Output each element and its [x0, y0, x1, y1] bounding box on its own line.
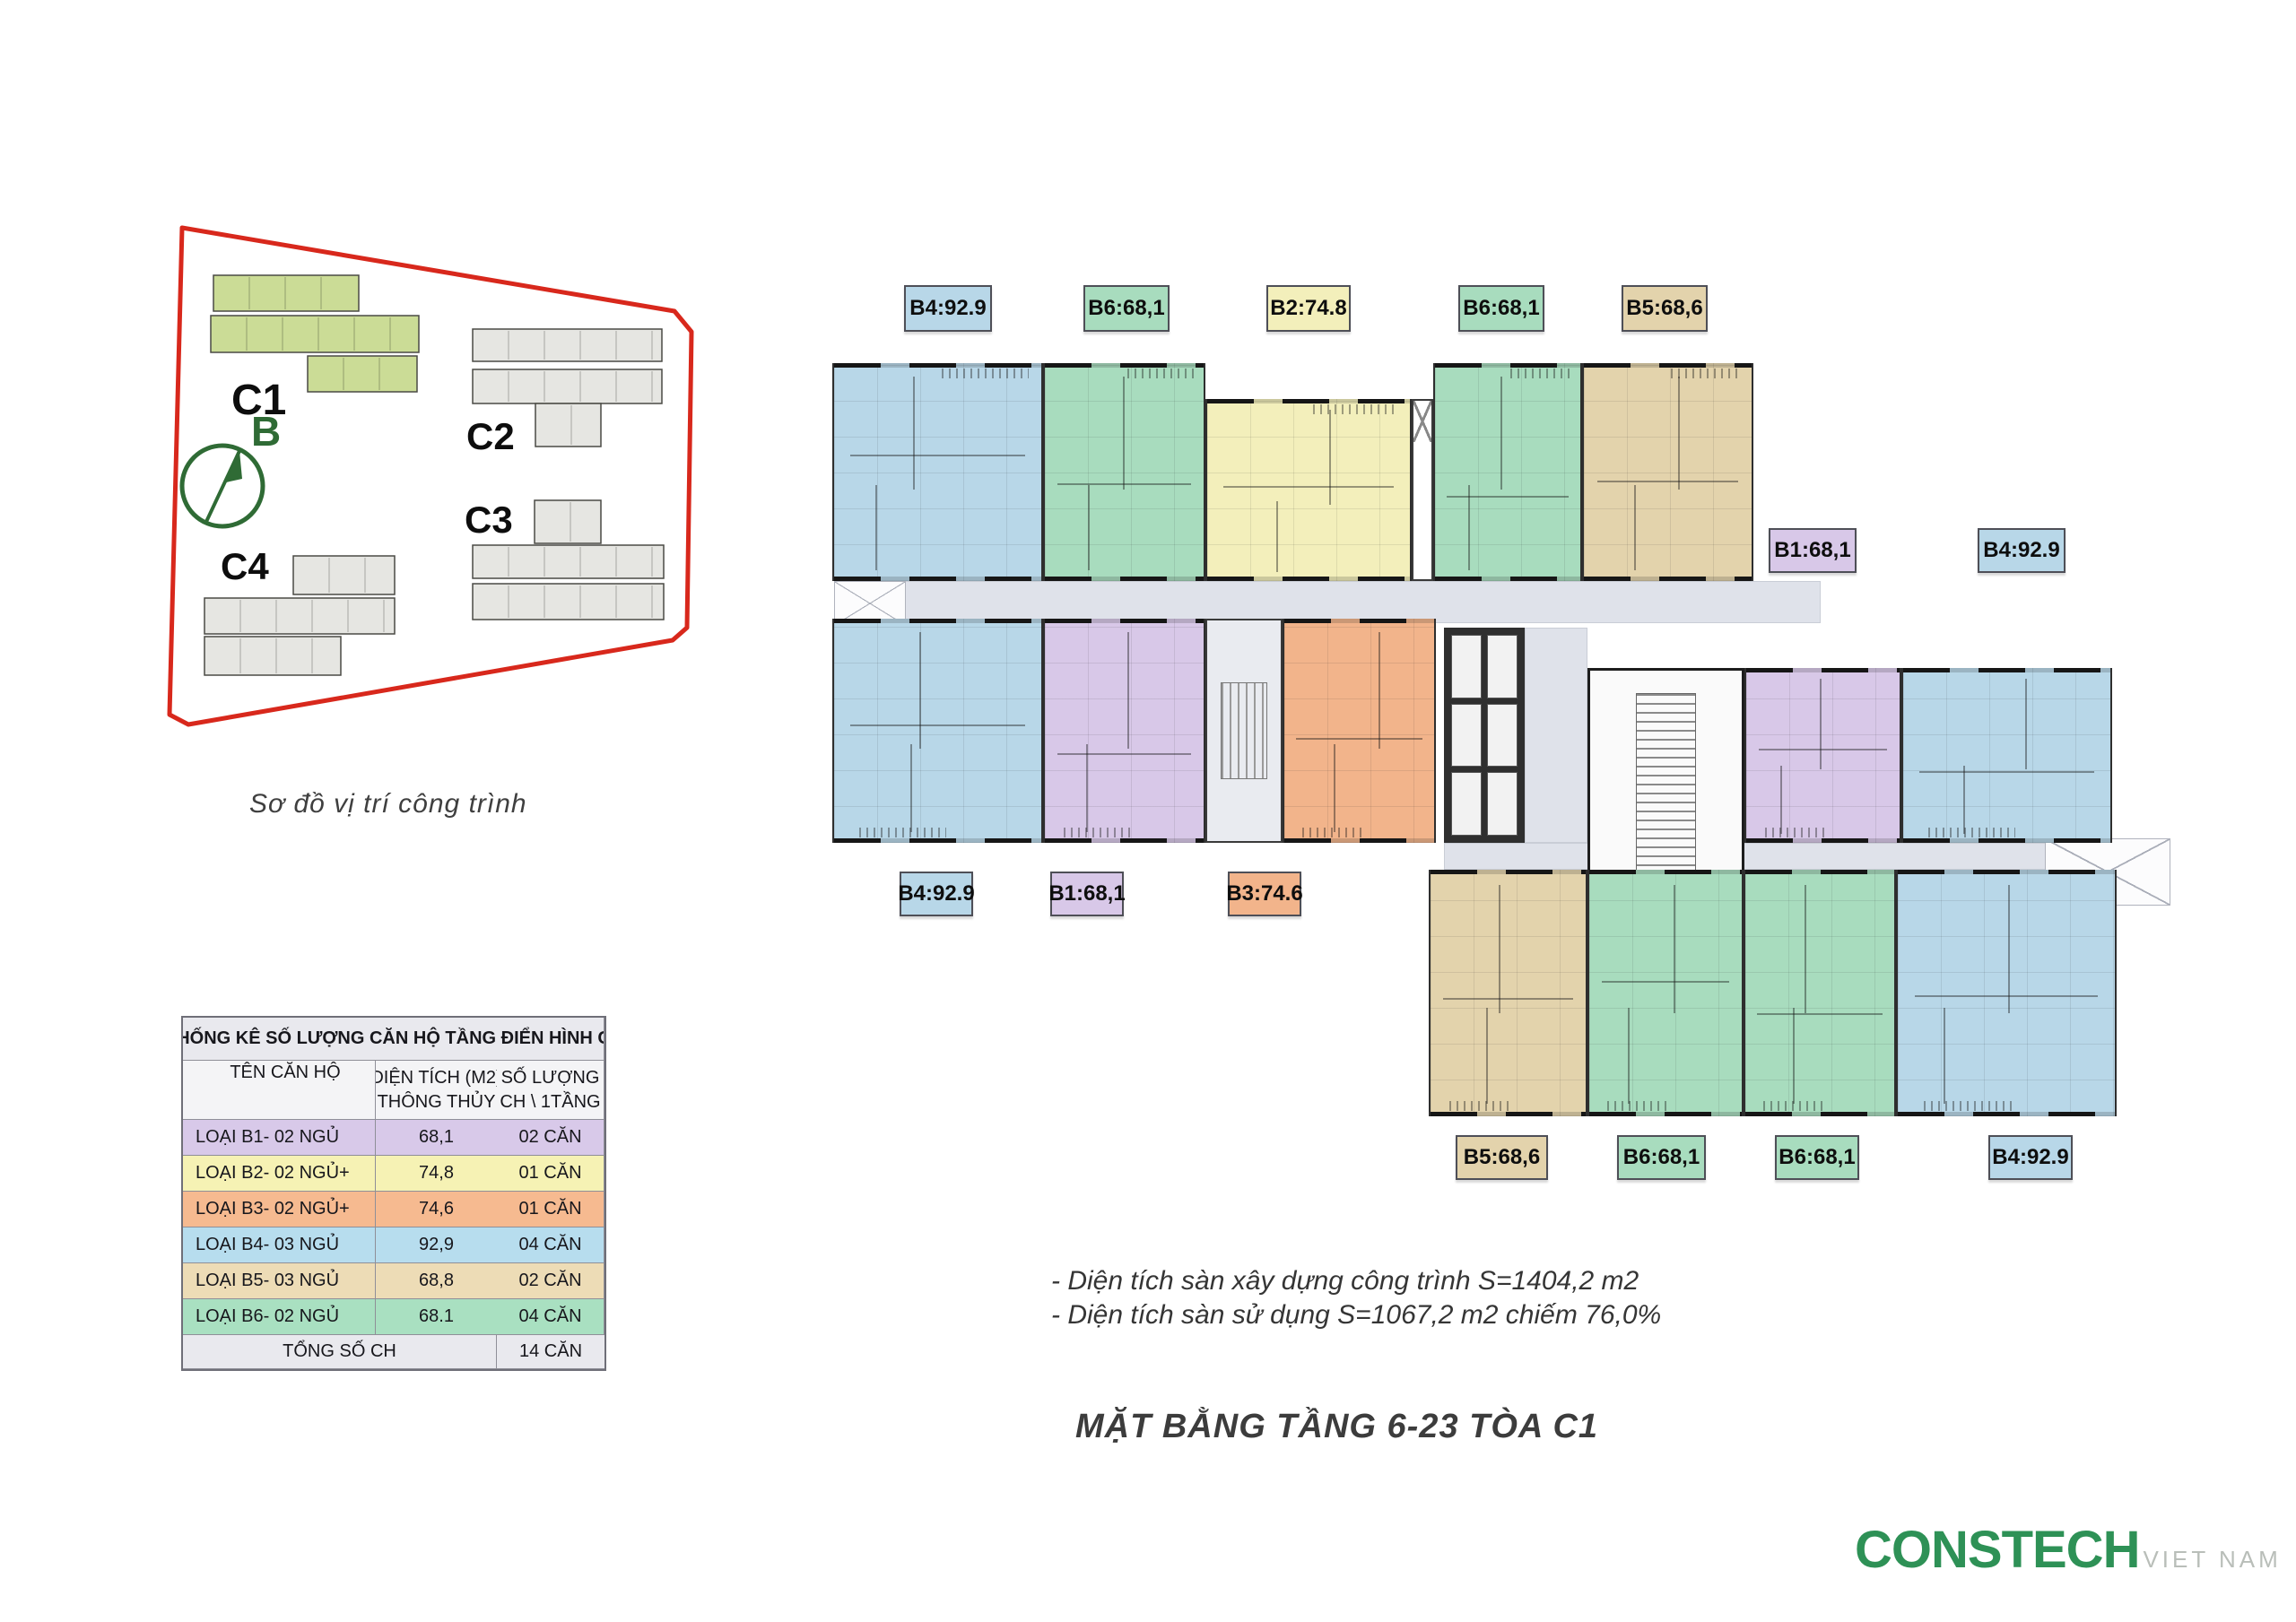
table-title: THỐNG KÊ SỐ LƯỢNG CĂN HỘ TẦNG ĐIỂN HÌNH …	[183, 1018, 604, 1061]
room-partition	[1634, 485, 1636, 570]
constech-logo: CONSTECH VIET NAM	[1855, 1524, 2282, 1576]
lobby-core	[1205, 619, 1283, 843]
table-cell-area: 68.1	[376, 1299, 497, 1335]
room-partition	[1919, 771, 2093, 773]
room-partition	[1057, 483, 1191, 485]
building-label-C4: C4	[221, 545, 269, 587]
room-partition	[1915, 995, 2097, 997]
unit-B4-block	[832, 619, 1043, 843]
logo-brand: CONSTECH	[1855, 1524, 2139, 1576]
room-partition	[1793, 1008, 1795, 1104]
room-partition	[1088, 485, 1090, 570]
balcony-hatch	[1064, 828, 1130, 837]
room-partition	[1468, 485, 1470, 570]
balcony-hatch	[1313, 404, 1398, 414]
room-partition	[1780, 766, 1782, 834]
room-partition	[1597, 481, 1738, 482]
room-partition	[913, 377, 915, 490]
room-partition	[2025, 679, 2027, 769]
shaft-core	[1412, 399, 1433, 581]
building-C2: C2	[466, 329, 662, 457]
room-partition	[1086, 744, 1088, 832]
unit-label-B4: B4:92.9	[1988, 1135, 2073, 1180]
site-map-caption: Sơ đồ vị trí công trình	[249, 789, 545, 820]
building-C4: C4	[204, 545, 395, 675]
unit-label-B6: B6:68,1	[1617, 1135, 1706, 1180]
compass-north-label: B	[251, 408, 281, 455]
unit-label-B2: B2:74.8	[1266, 285, 1351, 332]
room-partition	[1127, 632, 1129, 749]
column-header-area-line1: DIỆN TÍCH (M2)	[376, 1066, 497, 1090]
unit-B6-block	[1043, 363, 1205, 581]
balcony-hatch	[1302, 828, 1365, 837]
column-header-area: DIỆN TÍCH (M2) THÔNG THỦY	[376, 1061, 497, 1120]
room-partition	[875, 485, 877, 570]
table-cell-name: LOẠI B1- 02 NGỦ	[183, 1120, 376, 1156]
balcony-hatch	[1449, 1101, 1515, 1111]
balcony-hatch	[942, 369, 1029, 378]
elevator-cell	[1487, 704, 1518, 768]
room-partition	[1820, 679, 1822, 769]
unit-label-B6: B6:68,1	[1775, 1135, 1859, 1180]
room-partition	[1296, 738, 1422, 740]
balcony-hatch	[859, 828, 946, 837]
room-partition	[1123, 377, 1125, 490]
table-cell-qty: 04 CĂN	[497, 1299, 604, 1335]
table-cell-name: LOẠI B4- 03 NGỦ	[183, 1227, 376, 1263]
room-partition	[1447, 496, 1569, 498]
corridor-3	[1525, 628, 1587, 843]
balcony-hatch	[1510, 369, 1571, 378]
table-cell-name: LOẠI B6- 02 NGỦ	[183, 1299, 376, 1335]
unit-label-B4: B4:92.9	[1978, 528, 2066, 573]
plan-title: MẶT BẰNG TẦNG 6-23 TÒA C1	[1075, 1408, 1598, 1446]
room-partition	[1805, 885, 1806, 1013]
balcony-hatch	[1127, 369, 1194, 378]
room-partition	[1443, 998, 1573, 1000]
room-partition	[1378, 632, 1380, 749]
room-partition	[850, 724, 1024, 726]
room-partition	[1329, 410, 1331, 505]
table-cell-name: LOẠI B3- 02 NGỦ+	[183, 1192, 376, 1227]
room-partition	[1759, 749, 1888, 750]
balcony-hatch	[1924, 1101, 2015, 1111]
apartment-statistics-table: THỐNG KÊ SỐ LƯỢNG CĂN HỘ TẦNG ĐIỂN HÌNH …	[181, 1016, 606, 1371]
unit-label-B6: B6:68,1	[1083, 285, 1170, 332]
table-cell-area: 68,8	[376, 1263, 497, 1299]
unit-B4-block	[1896, 870, 2117, 1116]
room-partition	[1276, 501, 1278, 572]
table-cell-name: LOẠI B5- 03 NGỦ	[183, 1263, 376, 1299]
balcony-hatch	[1765, 828, 1830, 837]
unit-label-B3: B3:74.6	[1228, 872, 1301, 916]
column-header-name: TÊN CĂN HỘ	[183, 1061, 376, 1120]
unit-B4-block	[1901, 668, 2112, 843]
table-cell-area: 68,1	[376, 1120, 497, 1156]
room-partition	[1057, 753, 1191, 755]
table-cell-qty: 04 CĂN	[497, 1227, 604, 1263]
unit-B2-block	[1205, 399, 1412, 581]
room-partition	[1499, 885, 1500, 1013]
corridor-1	[839, 581, 1821, 623]
elevator-cell	[1451, 635, 1482, 698]
elevator-cell	[1487, 772, 1518, 836]
compass-icon: B	[182, 408, 281, 526]
stair-core	[1587, 668, 1744, 901]
site-buildings: C1C2C3C4	[204, 275, 664, 675]
room-partition	[1628, 1008, 1630, 1104]
column-header-qty-line2: CH \ 1TẦNG	[500, 1090, 600, 1115]
building-C3: C3	[465, 499, 664, 620]
building-C1: C1	[211, 275, 419, 424]
balcony-hatch	[1763, 1101, 1826, 1111]
building-label-C3: C3	[465, 499, 513, 541]
unit-label-B5: B5:68,6	[1622, 285, 1708, 332]
unit-B5-block	[1429, 870, 1587, 1116]
unit-B5-block	[1582, 363, 1753, 581]
table-cell-area: 74,6	[376, 1192, 497, 1227]
unit-label-B4: B4:92.9	[904, 285, 992, 332]
room-partition	[910, 744, 912, 832]
room-partition	[1757, 1013, 1882, 1015]
unit-label-B1: B1:68,1	[1050, 872, 1124, 916]
unit-B6-block	[1587, 870, 1744, 1116]
balcony-hatch	[1607, 1101, 1671, 1111]
table-cell-qty: 01 CĂN	[497, 1192, 604, 1227]
room-partition	[1500, 377, 1502, 490]
room-partition	[1674, 885, 1675, 1013]
page: C1C2C3C4 B Sơ đồ vị trí công trình B4:92…	[0, 0, 2296, 1622]
unit-B6-block	[1744, 870, 1896, 1116]
building-label-C2: C2	[466, 415, 515, 457]
logo-suffix: VIET NAM	[2143, 1548, 2281, 1571]
table-cell-qty: 02 CĂN	[497, 1120, 604, 1156]
column-header-qty: SỐ LƯỢNG CH \ 1TẦNG	[497, 1061, 604, 1120]
table-total-label: TỔNG SỐ CH	[183, 1335, 497, 1369]
unit-B4-block	[832, 363, 1043, 581]
unit-B3-block	[1283, 619, 1436, 843]
table-cell-area: 74,8	[376, 1156, 497, 1192]
elevator-cell	[1487, 635, 1518, 698]
room-partition	[1486, 1008, 1488, 1104]
elevator-core	[1444, 628, 1525, 843]
room-partition	[919, 632, 921, 749]
unit-label-B4: B4:92.9	[900, 872, 973, 916]
elevator-cell	[1451, 704, 1482, 768]
unit-label-B6: B6:68,1	[1458, 285, 1544, 332]
room-partition	[1944, 1008, 1945, 1104]
room-partition	[1602, 981, 1730, 983]
balcony-hatch	[1671, 369, 1742, 378]
unit-B1-block	[1043, 619, 1205, 843]
unit-B6-block	[1433, 363, 1582, 581]
table-cell-qty: 01 CĂN	[497, 1156, 604, 1192]
note-usable-area: - Diện tích sàn sử dụng S=1067,2 m2 chiế…	[1051, 1300, 1661, 1331]
unit-label-B1: B1:68,1	[1769, 528, 1857, 573]
unit-B1-block	[1744, 668, 1901, 843]
table-total-qty: 14 CĂN	[497, 1335, 604, 1369]
room-partition	[2008, 885, 2010, 1013]
table-cell-name: LOẠI B2- 02 NGỦ+	[183, 1156, 376, 1192]
column-header-area-line2: THÔNG THỦY	[378, 1090, 496, 1115]
unit-label-B5: B5:68,6	[1456, 1135, 1548, 1180]
room-partition	[1678, 377, 1680, 490]
room-partition	[1223, 486, 1394, 488]
note-construction-area: - Diện tích sàn xây dựng công trình S=14…	[1051, 1266, 1639, 1297]
room-partition	[1963, 766, 1965, 834]
room-partition	[850, 455, 1024, 456]
table-cell-area: 92,9	[376, 1227, 497, 1263]
column-header-qty-line1: SỐ LƯỢNG	[501, 1066, 600, 1090]
shaft-hatch	[1413, 401, 1431, 442]
table-cell-qty: 02 CĂN	[497, 1263, 604, 1299]
balcony-hatch	[1928, 828, 2015, 837]
elevator-cell	[1451, 772, 1482, 836]
room-partition	[1334, 744, 1335, 832]
